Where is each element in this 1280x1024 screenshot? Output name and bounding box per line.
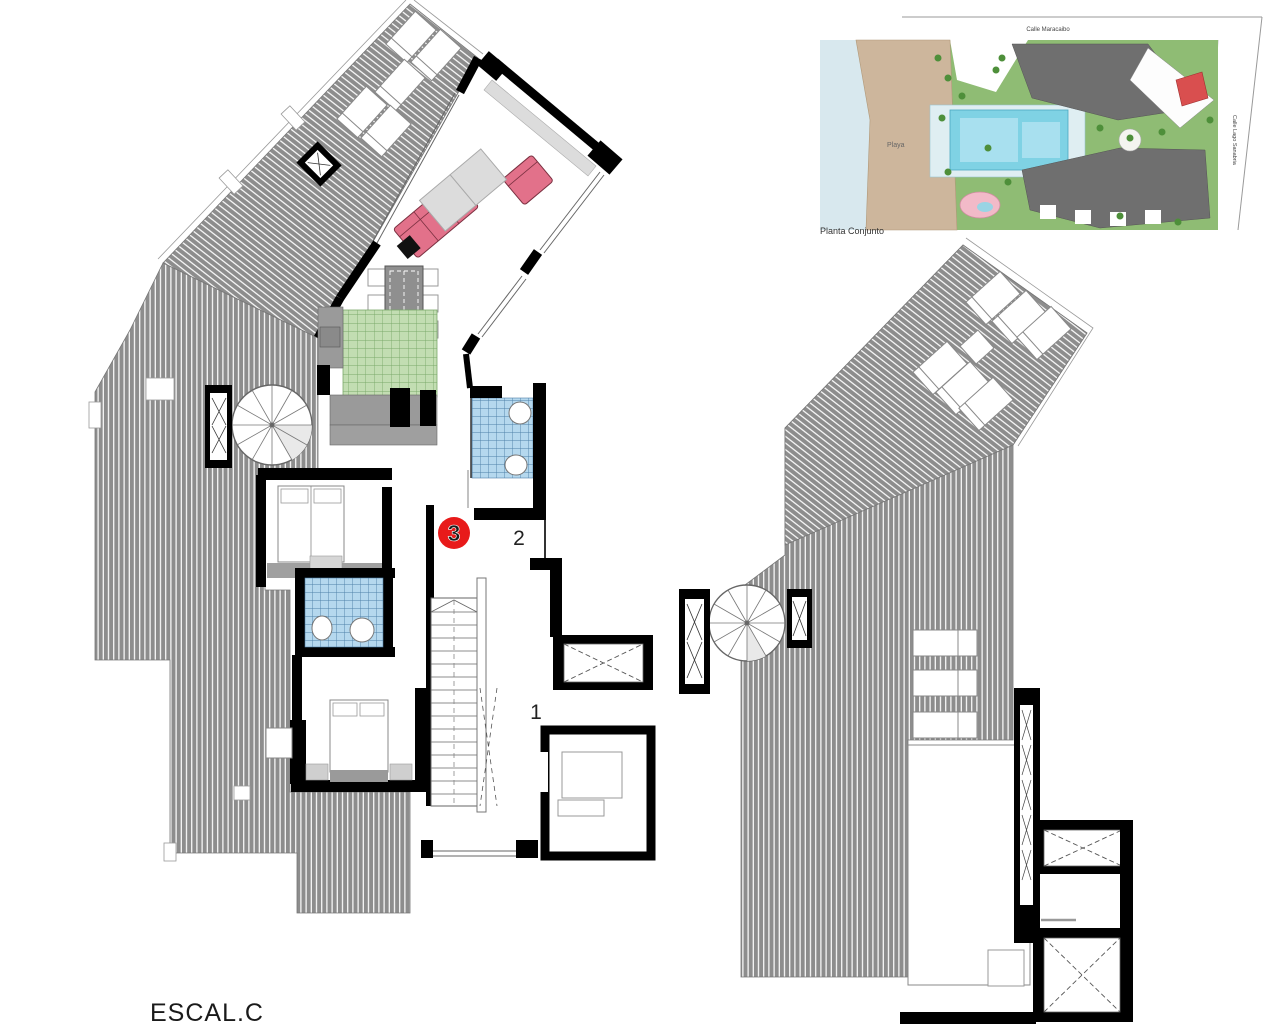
door-gap: [536, 752, 548, 792]
appliance: [562, 752, 622, 798]
unit-number-text: 3: [448, 520, 461, 546]
storage-room: [536, 730, 651, 856]
main-floor-plan: 3 2 1: [89, 0, 653, 913]
right-room: [908, 745, 1030, 986]
inset-caption: Planta Conjunto: [820, 226, 884, 236]
vent-box-main: [205, 385, 232, 468]
door-leaf: [266, 728, 292, 758]
kitchen: [317, 307, 437, 445]
staircase-name-label: ESCAL.C: [150, 999, 264, 1024]
stair-railing: [477, 578, 486, 812]
vent-box-right-b: [787, 589, 812, 648]
nightstand: [390, 764, 412, 780]
elevator-main: [530, 520, 653, 690]
zone-label-1: 1: [530, 701, 542, 724]
right-floor-plan: [679, 238, 1133, 1024]
table: [988, 950, 1024, 986]
unit-number-badge: 3: [438, 517, 470, 549]
nightstand: [306, 764, 328, 780]
sink: [350, 618, 374, 642]
wall: [466, 354, 470, 388]
vent-box-right-a: [679, 589, 710, 694]
road-line: [1238, 17, 1262, 230]
zone-label-2: 2: [513, 527, 525, 550]
wall: [466, 336, 476, 352]
toilet: [312, 616, 332, 640]
armchair: [503, 155, 554, 205]
street-label-right: Calle Lago Sanabria: [1231, 115, 1237, 166]
toilet: [505, 455, 527, 475]
bathroom-2: [468, 383, 546, 520]
pillow: [333, 703, 357, 716]
pillow: [314, 489, 341, 503]
sink: [509, 402, 531, 424]
bottom-window: [421, 840, 538, 858]
wall-corner: [594, 148, 616, 167]
street-label-top: Calle Maracaibo: [1026, 27, 1070, 33]
spiral-staircase-main: [232, 385, 312, 465]
staircase: [426, 505, 497, 812]
floor-plan-canvas: 3 2 1: [0, 0, 1280, 1024]
pillow: [281, 489, 308, 503]
site-plan-inset: Calle Maracaibo Playa Planta Conjunto Ca…: [820, 17, 1262, 236]
wall-corner: [483, 58, 502, 74]
bathroom-1: [295, 568, 395, 657]
beach-label: Playa: [887, 142, 905, 149]
kitchen-floor: [343, 310, 437, 397]
pillow: [360, 703, 384, 716]
bed-foot: [330, 770, 388, 782]
spiral-staircase-right: [709, 585, 785, 661]
right-loungers-lower: [913, 630, 977, 738]
wall: [524, 252, 538, 272]
